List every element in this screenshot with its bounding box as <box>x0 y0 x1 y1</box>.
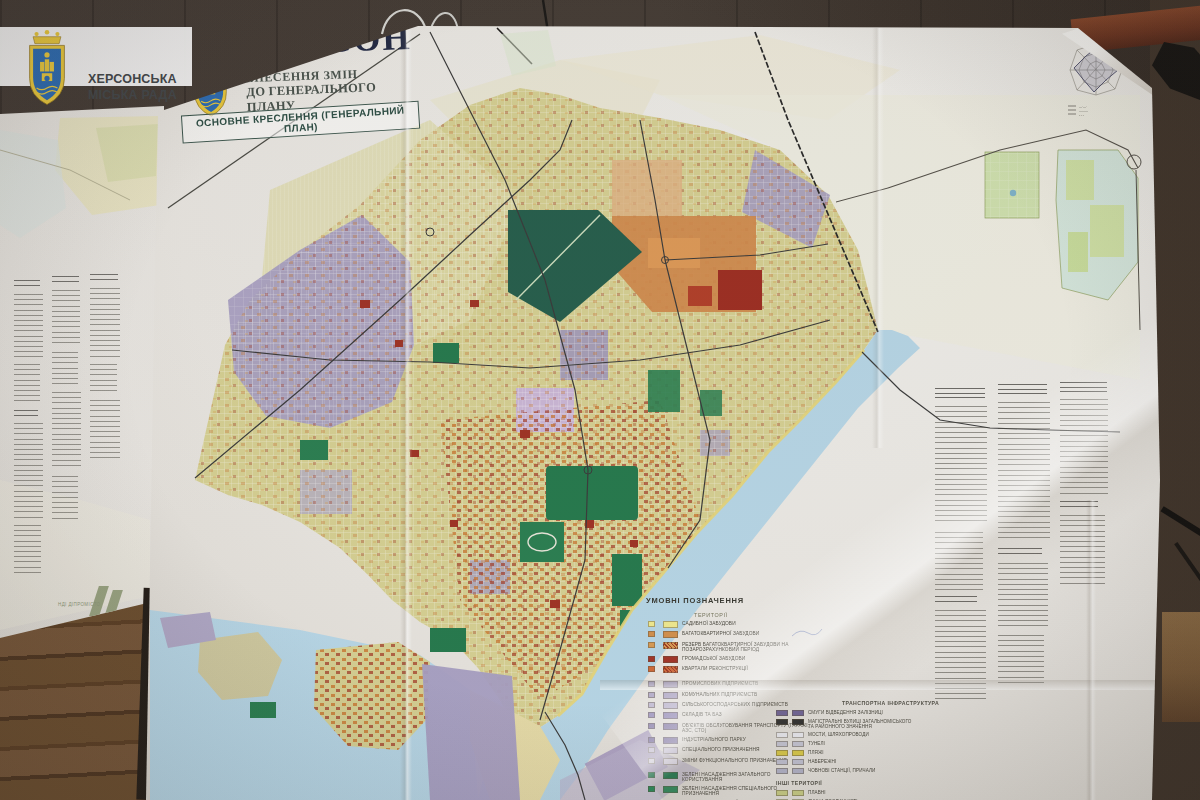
legend-swatch <box>776 759 788 765</box>
legend-swatch <box>776 750 788 756</box>
svg-text:- - -: - - - <box>1079 113 1084 117</box>
dipromisto-logo-text: НДІ ДІПРОМІСТО <box>58 602 100 607</box>
legend-swatch <box>648 666 655 672</box>
legend-swatch <box>663 772 678 779</box>
legend-swatch <box>792 759 804 765</box>
legend-item: МАГІСТРАЛЬНІ ВУЛИЦІ ЗАГАЛЬНОМІСЬКОГО ТА … <box>776 719 966 729</box>
legend-swatch <box>648 681 655 687</box>
legend-swatch <box>648 772 655 778</box>
legend-swatch <box>663 723 678 730</box>
legend-swatch <box>663 747 678 754</box>
legend-swatch <box>663 666 678 673</box>
legend-item: САДИБНОЇ ЗАБУДОВИ <box>646 621 846 628</box>
wood-post <box>1162 612 1200 722</box>
legend-swatch <box>648 723 655 729</box>
legend-swatch <box>792 732 804 738</box>
legend-item: СМУГИ ВІДВЕДЕННЯ ЗАЛІЗНИЦІ <box>776 710 966 716</box>
legend-swatch <box>663 656 678 663</box>
city-council-name: ХЕРСОНСЬКА МІСЬКА РАДА <box>88 71 177 104</box>
legend-swatch <box>663 758 678 765</box>
legend-transport: ТРАНСПОРТНА ІНФРАСТРУКТУРА СМУГИ ВІДВЕДЕ… <box>776 700 966 800</box>
legend-swatch <box>792 710 804 716</box>
legend-swatch <box>663 642 678 649</box>
legend-item: ПЛАВНІ <box>776 790 966 796</box>
index-text-column <box>998 384 1052 689</box>
index-text-column <box>935 388 989 708</box>
legend-item: КОМУНАЛЬНИХ ПІДПРИЄМСТВ <box>646 692 846 699</box>
legend-swatch <box>663 702 678 709</box>
legend-swatch <box>792 768 804 774</box>
legend-item: ЧОВНОВІ СТАНЦІЇ, ПРИЧАЛИ <box>776 768 966 774</box>
legend-swatch <box>776 741 788 747</box>
text-column <box>14 280 44 583</box>
text-column <box>52 276 82 528</box>
legend-swatch <box>648 758 655 764</box>
city-council-coat-of-arms-icon <box>20 28 74 108</box>
legend-item: ПЛЯЖІ <box>776 750 966 756</box>
legend-swatch <box>792 790 804 796</box>
legend-item: ПРОМИСЛОВИХ ПІДПРИЄМСТВ <box>646 681 846 688</box>
legend-item: НАБЕРЕЖНІ <box>776 759 966 765</box>
legend-swatch <box>648 656 655 662</box>
legend-item: ГРОМАДСЬКОЇ ЗАБУДОВИ <box>646 656 846 663</box>
legend-other-header: ІНШІ ТЕРИТОРІЇ <box>776 780 966 786</box>
legend-swatch <box>776 710 788 716</box>
legend-swatch <box>663 631 678 638</box>
legend-swatch <box>776 719 788 725</box>
index-text-column <box>1060 382 1110 591</box>
text-column <box>90 274 122 466</box>
legend-swatch <box>648 712 655 718</box>
legend-item: МОСТИ, ШЛЯХОПРОВОДИ <box>776 732 966 738</box>
legend-item: БАГАТОКВАРТИРНОЇ ЗАБУДОВИ <box>646 631 846 638</box>
legend-transport-header: ТРАНСПОРТНА ІНФРАСТРУКТУРА <box>842 700 966 706</box>
legend-swatch <box>792 741 804 747</box>
legend-swatch <box>663 737 678 744</box>
legend-swatch <box>648 786 655 792</box>
legend-swatch <box>776 768 788 774</box>
general-plan-sheet: ХЕРСОН ВНЕСЕННЯ ЗМІН ДО ГЕНЕРАЛЬНОГО ПЛА… <box>0 0 1200 800</box>
legend-swatch <box>648 737 655 743</box>
legend-swatch <box>776 790 788 796</box>
legend-swatch <box>792 719 804 725</box>
legend-item: ТУНЕЛІ <box>776 741 966 747</box>
legend-header: УМОВНІ ПОЗНАЧЕННЯ <box>646 596 846 605</box>
legend-swatch <box>663 692 678 699</box>
legend-swatch <box>648 631 655 637</box>
legend-swatch <box>663 681 678 688</box>
legend-swatch <box>792 750 804 756</box>
legend-swatch <box>648 747 655 753</box>
legend-swatch <box>776 732 788 738</box>
legend-swatch <box>663 621 678 628</box>
legend-swatch <box>648 642 655 648</box>
legend-swatch <box>663 712 678 719</box>
legend-item: КВАРТАЛИ РЕКОНСТРУКЦІЇ <box>646 666 846 673</box>
legend-swatch <box>648 692 655 698</box>
legend-swatch <box>663 786 678 793</box>
legend-swatch <box>648 621 655 627</box>
legend-item: РЕЗЕРВ БАГАТОКВАРТИРНОЇ ЗАБУДОВИ НА ПОЗА… <box>646 642 846 653</box>
legend-territories-header: ТЕРИТОРІЇ <box>694 612 846 618</box>
legend-swatch <box>648 702 655 708</box>
